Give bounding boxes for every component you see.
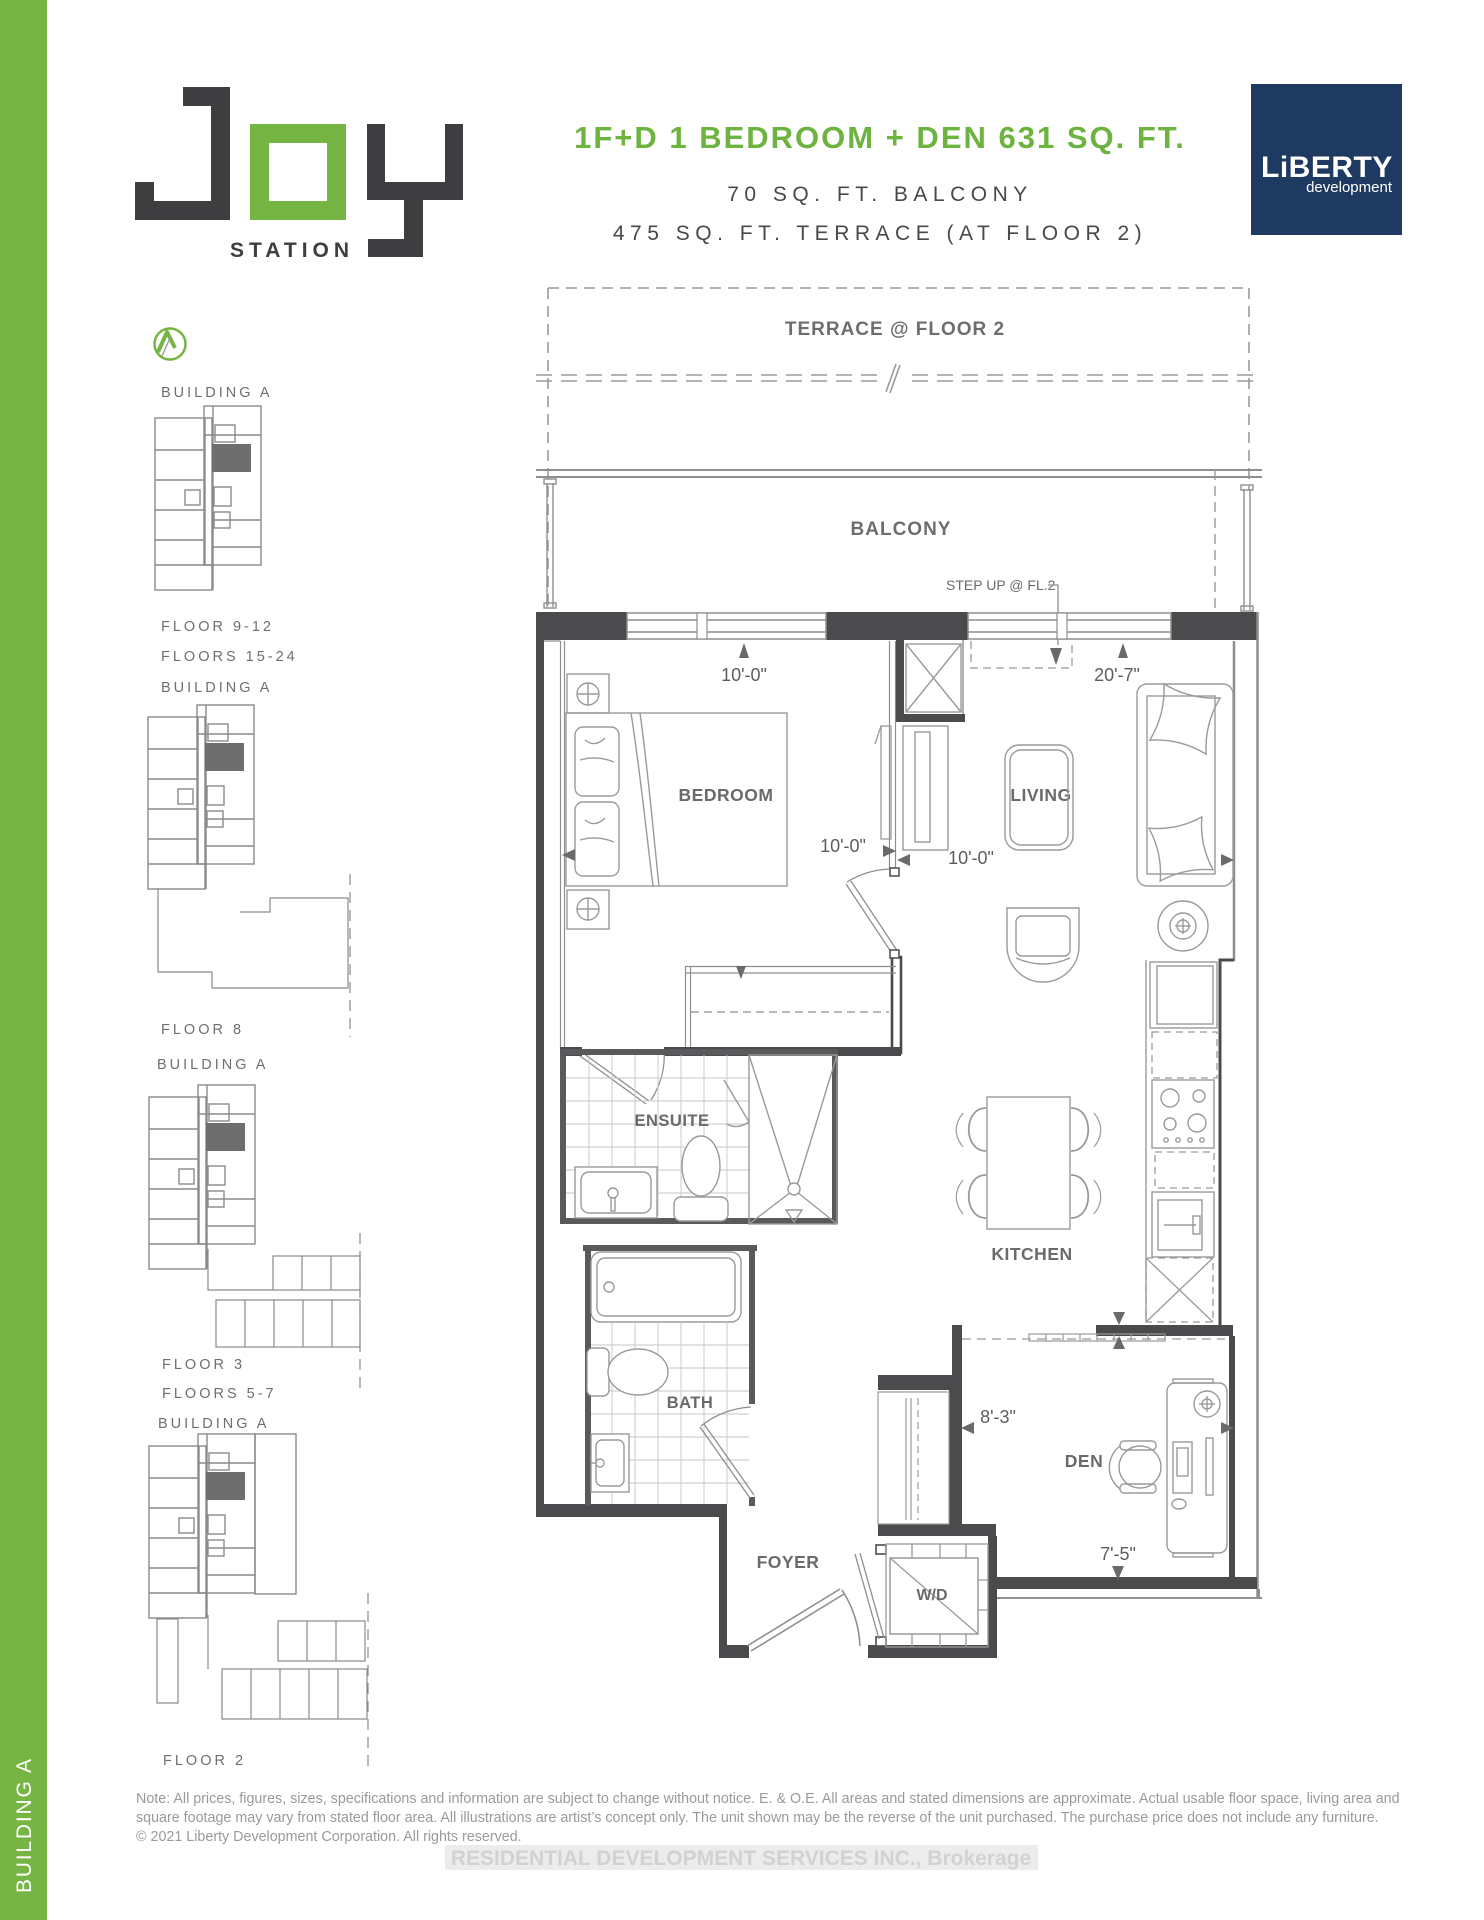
svg-text:BEDROOM: BEDROOM: [679, 785, 774, 805]
svg-text:ENSUITE: ENSUITE: [634, 1112, 709, 1130]
svg-text:BUILDING A: BUILDING A: [13, 1757, 36, 1893]
svg-text:LIVING: LIVING: [1010, 785, 1071, 805]
svg-text:10'-0": 10'-0": [948, 848, 994, 868]
svg-text:W/D: W/D: [916, 1587, 947, 1604]
svg-text:TERRACE @ FLOOR 2: TERRACE @ FLOOR 2: [785, 319, 1005, 340]
svg-text:FOYER: FOYER: [757, 1552, 820, 1572]
svg-text:FLOOR 3: FLOOR 3: [162, 1357, 245, 1373]
svg-text:BATH: BATH: [667, 1394, 714, 1412]
svg-text:KITCHEN: KITCHEN: [991, 1244, 1072, 1264]
svg-text:BALCONY: BALCONY: [851, 519, 952, 540]
svg-text:BUILDING A: BUILDING A: [157, 1057, 268, 1073]
svg-text:70 SQ. FT. BALCONY: 70 SQ. FT. BALCONY: [727, 183, 1033, 206]
svg-text:10'-0": 10'-0": [820, 836, 866, 856]
svg-text:FLOOR 9-12: FLOOR 9-12: [161, 619, 274, 635]
svg-text:Note: All prices, figures, siz: Note: All prices, figures, sizes, specif…: [136, 1791, 1400, 1807]
svg-text:20'-7": 20'-7": [1094, 665, 1140, 685]
svg-text:DEN: DEN: [1065, 1451, 1103, 1471]
svg-text:BUILDING A: BUILDING A: [161, 385, 272, 401]
svg-text:FLOORS 15-24: FLOORS 15-24: [161, 649, 298, 665]
svg-text:BUILDING A: BUILDING A: [158, 1416, 269, 1432]
svg-text:RESIDENTIAL DEVELOPMENT SERVIC: RESIDENTIAL DEVELOPMENT SERVICES INC., B…: [451, 1847, 1031, 1870]
svg-text:10'-0": 10'-0": [721, 665, 767, 685]
svg-text:8'-3": 8'-3": [980, 1407, 1016, 1427]
svg-text:STEP UP @ FL.2: STEP UP @ FL.2: [946, 577, 1056, 593]
svg-text:1F+D 1 BEDROOM + DEN 631 SQ. F: 1F+D 1 BEDROOM + DEN 631 SQ. FT.: [574, 120, 1186, 155]
svg-text:FLOORS 5-7: FLOORS 5-7: [162, 1386, 277, 1402]
svg-text:STATION: STATION: [230, 239, 354, 262]
svg-text:FLOOR 8: FLOOR 8: [161, 1022, 244, 1038]
svg-text:FLOOR 2: FLOOR 2: [163, 1753, 246, 1769]
svg-text:BUILDING A: BUILDING A: [161, 680, 272, 696]
svg-text:development: development: [1306, 179, 1393, 196]
svg-text:475 SQ. FT. TERRACE (AT FLOOR: 475 SQ. FT. TERRACE (AT FLOOR 2): [613, 222, 1147, 245]
svg-text:© 2021 Liberty Development Cor: © 2021 Liberty Development Corporation. …: [136, 1829, 522, 1845]
svg-text:square footage may vary from s: square footage may vary from stated floo…: [136, 1810, 1379, 1826]
svg-text:7'-5": 7'-5": [1100, 1544, 1136, 1564]
